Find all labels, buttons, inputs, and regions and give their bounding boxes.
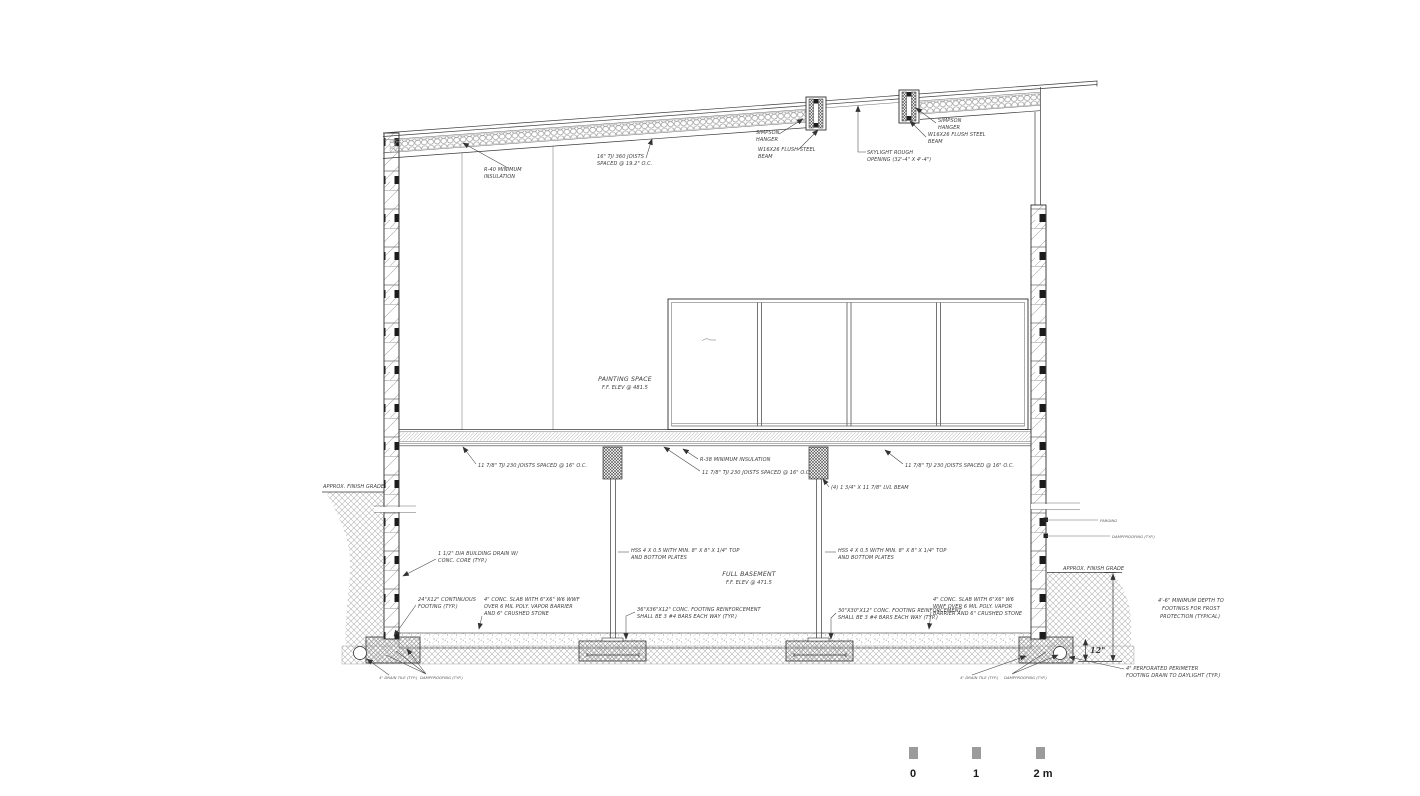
column-cap-block bbox=[603, 447, 622, 479]
floor-insulation-band bbox=[399, 433, 1031, 441]
callout-perimeter-drain: 4" PERFORATED PERIMETER bbox=[1126, 666, 1198, 672]
wall-break-symbol bbox=[1031, 504, 1080, 509]
scale-tick-mark bbox=[972, 747, 981, 759]
callout-simpson-hanger-right: SIMPSON bbox=[938, 118, 962, 124]
dimension-12in-label: 12" bbox=[1090, 645, 1105, 655]
scale-tick-mark bbox=[1036, 747, 1045, 759]
footing-column-right bbox=[786, 641, 853, 661]
scale-label-1: 1 bbox=[973, 768, 979, 780]
right-wall bbox=[1031, 87, 1080, 639]
footing-right bbox=[1019, 637, 1073, 663]
callout-drain-tile-left: 4" DRAIN TILE (TYP.) bbox=[379, 675, 418, 680]
callout-roof-insulation: R-40 MINIMUM bbox=[484, 167, 522, 173]
callout-skylight-opening: SKYLIGHT ROUGH bbox=[867, 150, 913, 156]
room-label-full-basement-elev: F.F. ELEV @ 471.5 bbox=[726, 580, 772, 586]
footing-column-left bbox=[579, 641, 646, 661]
callout-steel-beam-left: W16X26 FLUSH STEEL bbox=[758, 147, 816, 153]
callout-continuous-footing: 24"X12" CONTINUOUS bbox=[418, 597, 477, 603]
callout-steel-beam-right-2: BEAM bbox=[928, 139, 943, 145]
callout-footing-reinf-left: 36"X36"X12" CONC. FOOTING REINFORCEMENT bbox=[637, 607, 762, 613]
label-finish-grade-right: APPROX. FINISH GRADE bbox=[1062, 566, 1125, 572]
scale-label-0: 0 bbox=[910, 768, 916, 780]
callout-slab-left: 4" CONC. SLAB WITH 6"X6" W6 WWF bbox=[484, 597, 580, 603]
window-wall bbox=[668, 299, 1028, 430]
callout-dampproofing-left: DAMPPROOFING (TYP.) bbox=[420, 675, 463, 680]
interior-framing-lines bbox=[462, 146, 553, 430]
callout-building-drain-2: CONC. CORE (TYP.) bbox=[438, 558, 487, 564]
basement-slab bbox=[399, 633, 1031, 648]
callout-floor-joists-mid: 11 7/8" TJI 230 JOISTS SPACED @ 16" O.C. bbox=[702, 470, 811, 476]
callout-skylight-opening-2: OPENING (32'-4" X 4'-4") bbox=[867, 157, 931, 163]
callout-footing-reinf-right: 30"X30"X12" CONC. FOOTING REINFORCEMENT bbox=[838, 608, 963, 614]
callout-hss-column-left-2: AND BOTTOM PLATES bbox=[630, 555, 688, 561]
skylight-hanger-left bbox=[806, 97, 826, 130]
roof-assembly bbox=[383, 81, 1097, 159]
callout-building-drain: 1 1/2" DIA BUILDING DRAIN W/ bbox=[438, 551, 519, 557]
callout-footing-reinf-left-2: SHALL BE 3 #4 BARS EACH WAY (TYP.) bbox=[637, 614, 737, 620]
callout-continuous-footing-2: FOOTING (TYP.) bbox=[418, 604, 458, 610]
column-base-plate bbox=[808, 638, 829, 641]
earth-right bbox=[1047, 572, 1131, 648]
callout-slab-left-2: OVER 6 MIL POLY. VAPOR BARRIER bbox=[484, 604, 573, 610]
callout-floor-joists-right: 11 7/8" TJI 230 JOISTS SPACED @ 16" O.C. bbox=[905, 463, 1014, 469]
callout-floor-insulation: R-38 MINIMUM INSULATION bbox=[700, 457, 771, 463]
callout-dampproofing-right: DAMPPROOFING (TYP.) bbox=[1004, 675, 1047, 680]
callout-frost-depth-2: FOOTINGS FOR FROST bbox=[1162, 606, 1221, 612]
callout-roof-joists: 16" TJI 360 JOISTS bbox=[597, 154, 645, 160]
callout-hss-column-right-2: AND BOTTOM PLATES bbox=[837, 555, 895, 561]
room-label-painting-space: PAINTING SPACE bbox=[598, 376, 652, 383]
callout-frost-depth: 4'-6" MINIMUM DEPTH TO bbox=[1158, 598, 1224, 604]
callout-slab-left-3: AND 6" CRUSHED STONE bbox=[483, 611, 550, 617]
column-cap-block bbox=[809, 447, 828, 479]
wall-break-symbol bbox=[374, 507, 416, 512]
callout-wall-dampproofing: DAMPPROOFING (TYP.) bbox=[1112, 534, 1155, 539]
callout-perimeter-drain-2: FOOTING DRAIN TO DAYLIGHT (TYP.) bbox=[1126, 673, 1221, 679]
roof-insulation-batt bbox=[390, 110, 808, 152]
second-floor-assembly bbox=[399, 430, 1031, 446]
room-label-painting-space-elev: F.F. ELEV @ 481.5 bbox=[602, 385, 648, 391]
callout-hss-column-right: HSS 4 X 0.5 WITH MIN. 8" X 8" X 1/4" TOP bbox=[838, 548, 947, 554]
callout-steel-beam-left-2: BEAM bbox=[758, 154, 773, 160]
building-section-sheet: 12" R-40 MINIMUM INSULATION 16" T bbox=[0, 0, 1420, 796]
callout-lvl-beam: (4) 1 3/4" X 11 7/8" LVL BEAM bbox=[831, 485, 909, 491]
column-base-plate bbox=[602, 638, 623, 641]
perimeter-drain-pipe-right bbox=[1054, 647, 1067, 660]
basement-column-left bbox=[602, 447, 623, 641]
callout-simpson-hanger-left: SIMPSON bbox=[756, 130, 780, 136]
callout-simpson-hanger-right-2: HANGER bbox=[938, 125, 960, 131]
callout-floor-joists-left: 11 7/8" TJI 230 JOISTS SPACED @ 16" O.C. bbox=[478, 463, 587, 469]
callout-steel-beam-right: W16X26 FLUSH STEEL bbox=[928, 132, 986, 138]
scale-bar: 0 1 2 m bbox=[909, 747, 1053, 780]
callout-simpson-hanger-left-2: HANGER bbox=[756, 137, 778, 143]
basement-column-right bbox=[808, 447, 829, 641]
scale-tick-mark bbox=[909, 747, 918, 759]
callout-roof-joists-2: SPACED @ 19.2" O.C. bbox=[597, 161, 652, 167]
skylight-hanger-right bbox=[899, 90, 919, 123]
label-finish-grade-left: APPROX. FINISH GRADE bbox=[322, 484, 385, 490]
perimeter-drain-pipe-left bbox=[354, 647, 367, 660]
building-section-drawing: 12" R-40 MINIMUM INSULATION 16" T bbox=[0, 0, 1420, 796]
callout-hss-column-left: HSS 4 X 0.5 WITH MIN. 8" X 8" X 1/4" TOP bbox=[631, 548, 740, 554]
callout-wall-parging: PARGING bbox=[1100, 518, 1117, 523]
callout-slab-right: 4" CONC. SLAB WITH 6"X6" W6 bbox=[933, 597, 1014, 603]
earth-under-slab bbox=[342, 646, 1134, 664]
callout-drain-tile-right: 4" DRAIN TILE (TYP.) bbox=[960, 675, 999, 680]
room-label-full-basement: FULL BASEMENT bbox=[722, 571, 777, 578]
scale-label-2m: 2 m bbox=[1034, 768, 1053, 780]
callout-roof-insulation-2: INSULATION bbox=[484, 174, 515, 180]
callout-footing-reinf-right-2: SHALL BE 3 #4 BARS EACH WAY (TYP.) bbox=[838, 615, 938, 621]
callout-frost-depth-3: PROTECTION (TYPICAL) bbox=[1160, 614, 1220, 620]
